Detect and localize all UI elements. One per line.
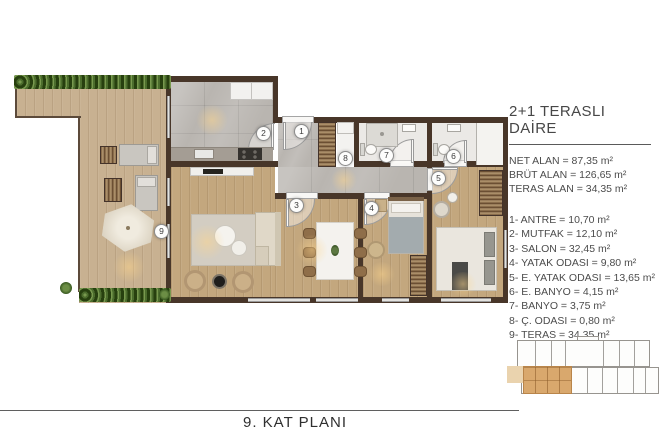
- plant-pot-salon: [159, 289, 170, 300]
- room-list: 1- ANTRE = 10,70 m² 2- MUTFAK = 12,10 m²…: [509, 213, 659, 343]
- room-label-2: 2: [256, 126, 271, 141]
- room-list-item: 4- YATAK ODASI = 9,80 m²: [509, 256, 659, 270]
- floor-caption: 9. KAT PLANI: [0, 414, 590, 431]
- room-label-4: 4: [364, 201, 379, 216]
- key-plan-wall: [551, 341, 552, 366]
- room5-window-east: [504, 230, 507, 268]
- room-list-item: 6- E. BANYO = 4,15 m²: [509, 285, 659, 299]
- terrace-side-table-2: [104, 178, 122, 202]
- footer-rule: [0, 410, 519, 411]
- key-plan-wall: [633, 368, 634, 393]
- salon-terrace-window-1: [167, 178, 170, 206]
- room-list-item: 2- MUTFAK = 12,10 m²: [509, 227, 659, 241]
- room-label-7: 7: [379, 148, 394, 163]
- kitchen-door-leaf: [271, 123, 274, 150]
- armchair-1: [184, 270, 206, 292]
- room4-bed-headboard: [388, 197, 424, 201]
- bath6-sink: [447, 124, 461, 132]
- dining-chair-r1: [354, 228, 367, 239]
- hedge-bottom: [79, 288, 171, 302]
- kitchen-window: [167, 96, 170, 138]
- plant-pot-terrace: [60, 282, 72, 294]
- gross-area: BRÜT ALAN = 126,65 m²: [509, 168, 659, 182]
- key-plan-wall: [565, 341, 566, 366]
- room4-wardrobe: [410, 255, 427, 296]
- room4-bed-blanket: [389, 217, 423, 253]
- room-list-item: 8- Ç. ODASI = 0,80 m²: [509, 314, 659, 328]
- key-plan-wall: [602, 368, 603, 393]
- bath7-toilet-bowl: [365, 144, 377, 155]
- dining-chair-l3: [303, 266, 316, 277]
- terrace-lounger-1-pillow: [147, 146, 157, 164]
- room-label-1: 1: [294, 124, 309, 139]
- floor-plan-page: 1 2 3 4 5 6 7 8 9 2+1 TERASLI DAİRE NET …: [0, 0, 660, 433]
- bath7-sink: [402, 124, 416, 132]
- hall-wardrobe: [318, 122, 336, 167]
- room5-bed-throw: [452, 262, 468, 290]
- kitchen-cabinet-divider: [251, 83, 252, 99]
- dining-chair-r2: [354, 247, 367, 258]
- room-list-item: 3- SALON = 32,45 m²: [509, 242, 659, 256]
- sofa-back: [275, 212, 281, 266]
- coffee-table-small: [231, 240, 247, 256]
- room5-bed-pillow-1: [484, 232, 495, 257]
- dining-centerpiece: [331, 245, 339, 256]
- room4-door-sill: [364, 192, 390, 199]
- bath7-shower-drain: [380, 132, 384, 136]
- room-list-item: 1- ANTRE = 10,70 m²: [509, 213, 659, 227]
- room8-shelf: [337, 122, 354, 134]
- sofa-chaise: [255, 246, 269, 266]
- dining-chair-l2: [303, 247, 316, 258]
- room-label-9: 9: [154, 224, 169, 239]
- wall-hall-bath7: [354, 117, 359, 167]
- area-summary: NET ALAN = 87,35 m² BRÜT ALAN = 126,65 m…: [509, 154, 659, 196]
- terrace-edge-vert: [78, 116, 80, 292]
- terrace-edge-step: [15, 116, 81, 118]
- terrace-area: TERAS ALAN = 34,35 m²: [509, 182, 659, 196]
- key-plan-wall: [617, 368, 618, 393]
- salon-window-south-1: [248, 298, 310, 302]
- apartment-title: 2+1 TERASLI DAİRE: [509, 103, 651, 145]
- room-label-8: 8: [338, 151, 353, 166]
- bath7-door-leaf: [411, 139, 414, 163]
- armchair-2: [232, 271, 254, 293]
- room-label-6: 6: [446, 149, 461, 164]
- room5-bed-pillow-2: [484, 260, 495, 285]
- bath6-shower-cabin: [476, 123, 503, 165]
- room5-armchair: [433, 201, 450, 218]
- bath6-door-leaf: [464, 140, 467, 163]
- entrance-door-leaf: [283, 122, 286, 150]
- dining-chair-r3: [354, 266, 367, 277]
- key-plan-wall: [645, 368, 646, 393]
- room5-window: [441, 298, 491, 302]
- key-plan-wall: [603, 341, 604, 366]
- terrace-side-table-1: [100, 146, 117, 164]
- room-list-item: 5- E. YATAK ODASI = 13,65 m²: [509, 271, 659, 285]
- side-stool: [212, 274, 227, 289]
- net-area: NET ALAN = 87,35 m²: [509, 154, 659, 168]
- key-plan-highlight-unit: [523, 366, 572, 394]
- room5-wardrobe: [479, 170, 503, 216]
- room5-door-leaf: [432, 167, 458, 170]
- room4-bed-pillow: [391, 203, 421, 213]
- wall-room4-room5: [427, 117, 432, 303]
- key-plan-wall: [619, 341, 620, 366]
- room-list-item: 7- BANYO = 3,75 m²: [509, 299, 659, 313]
- key-plan-top-row: [517, 340, 650, 367]
- kitchen-sink: [194, 149, 214, 159]
- terrace-lounger-2-pillow: [137, 177, 156, 187]
- wall-right-perimeter: [503, 117, 508, 303]
- key-plan: [507, 336, 657, 398]
- key-plan-wall: [634, 341, 635, 366]
- room5-side-table: [447, 192, 458, 203]
- room4-window: [382, 298, 409, 302]
- key-plan-wall: [535, 341, 536, 366]
- room-label-3: 3: [289, 198, 304, 213]
- terrace-umbrella-pole: [126, 226, 130, 230]
- hedge-top: [14, 75, 171, 89]
- room-label-5: 5: [431, 171, 446, 186]
- salon-window-south-2: [316, 298, 358, 302]
- key-plan-wall: [587, 368, 588, 393]
- salon-door-sill: [286, 192, 318, 199]
- wall-kitchen-right: [273, 76, 278, 123]
- corridor-floor: [278, 167, 427, 193]
- dining-chair-l1: [303, 228, 316, 239]
- kitchen-stove: [238, 148, 262, 160]
- room4-pouf: [367, 241, 385, 259]
- tv-screen: [203, 169, 223, 174]
- info-panel: 2+1 TERASLI DAİRE NET ALAN = 87,35 m² BR…: [509, 103, 659, 343]
